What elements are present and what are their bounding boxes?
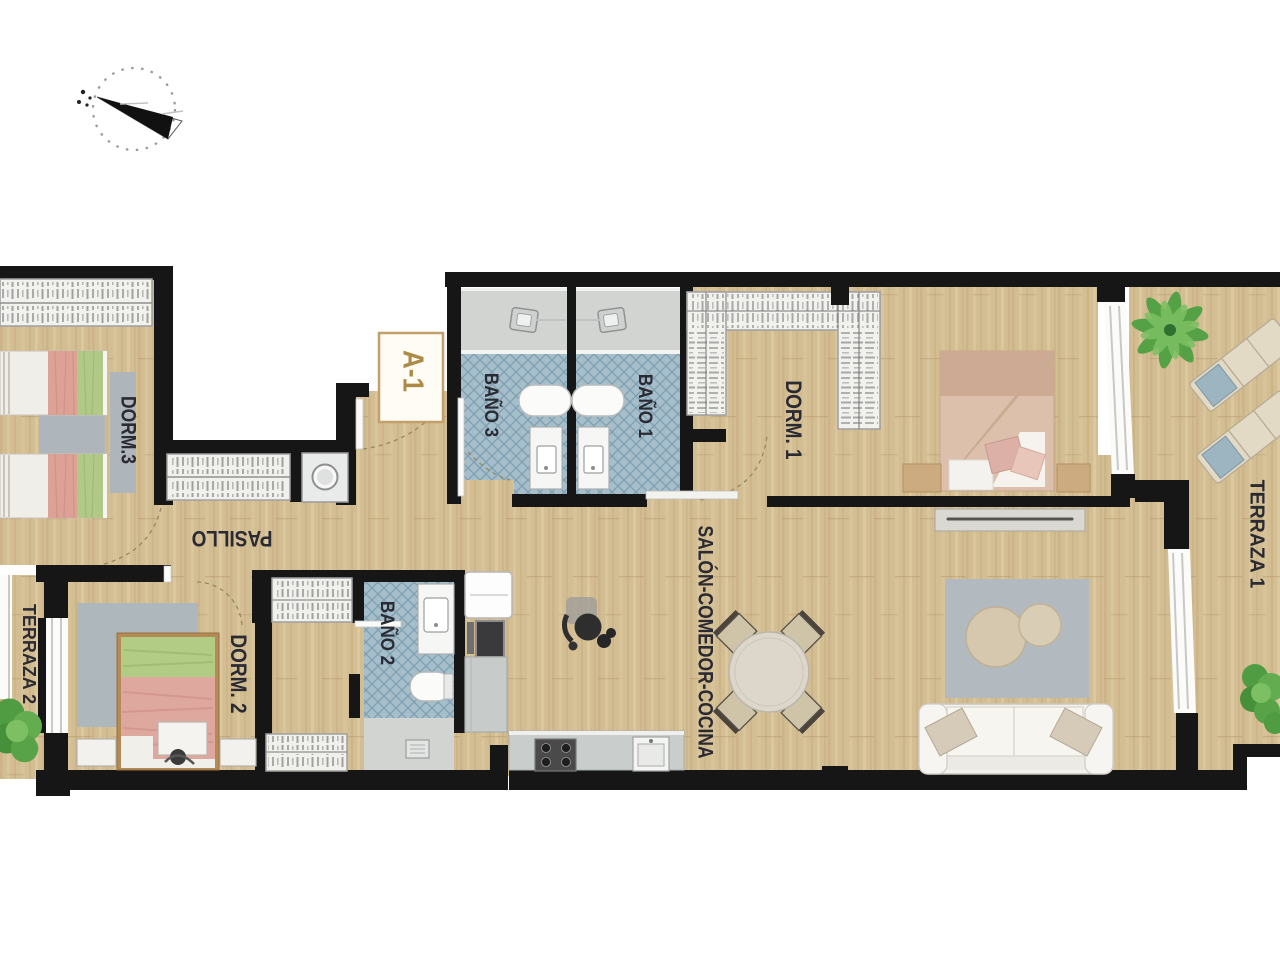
svg-text:A-1: A-1 bbox=[397, 350, 429, 392]
svg-text:SALÓN-COMEDOR-COCINA: SALÓN-COMEDOR-COCINA bbox=[693, 525, 719, 758]
svg-text:BAÑO 2: BAÑO 2 bbox=[377, 601, 399, 665]
svg-text:DORM.3: DORM.3 bbox=[116, 396, 139, 464]
svg-text:TERRAZA 2: TERRAZA 2 bbox=[19, 604, 41, 704]
svg-text:PASILLO: PASILLO bbox=[191, 526, 272, 551]
svg-text:TERRAZA 1: TERRAZA 1 bbox=[1245, 480, 1268, 589]
svg-text:DORM. 1: DORM. 1 bbox=[781, 380, 806, 459]
svg-text:DORM. 2: DORM. 2 bbox=[226, 634, 251, 713]
svg-text:BAÑO 3: BAÑO 3 bbox=[481, 373, 503, 437]
svg-text:BAÑO 1: BAÑO 1 bbox=[635, 374, 657, 438]
